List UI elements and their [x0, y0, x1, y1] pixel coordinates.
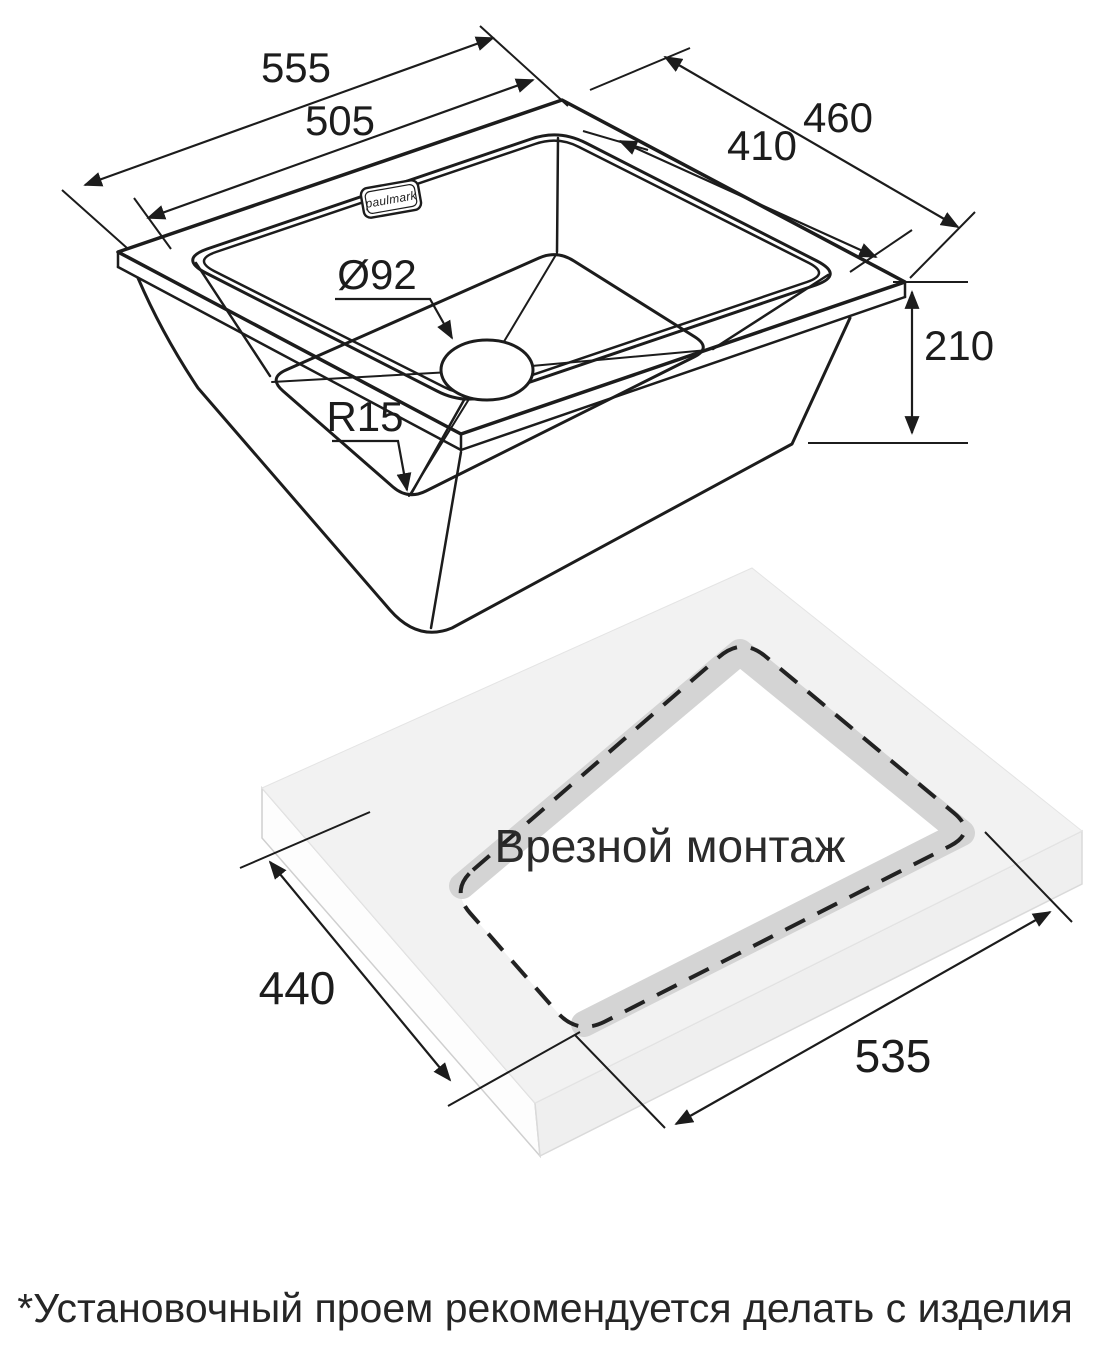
dimension-label-440: 440 [259, 962, 336, 1014]
installation-cutout-view: Врезной монтаж 440 535 [240, 568, 1082, 1156]
drain-leader [335, 299, 452, 338]
dim-line-460 [665, 57, 958, 227]
dimension-label-505: 505 [305, 97, 375, 144]
dimension-label-535: 535 [855, 1030, 932, 1082]
brand-logo: paulmark [360, 179, 422, 219]
sink-technical-drawing: paulmark 555 505 460 410 210 Ø92 [0, 0, 1114, 1371]
underbody-corner-seam [431, 452, 461, 628]
dimension-label-drain: Ø92 [337, 251, 416, 298]
installation-caption: Врезной монтаж [495, 820, 846, 872]
sink-dimensions: 555 505 460 410 210 Ø92 R15 [62, 26, 994, 490]
dimension-label-radius: R15 [326, 393, 403, 440]
dimension-label-210: 210 [924, 322, 994, 369]
footnote: *Установочный проем рекомендуется делать… [17, 1285, 1073, 1331]
dimension-label-410: 410 [727, 122, 797, 169]
sink-isometric-view: paulmark 555 505 460 410 210 Ø92 [62, 26, 994, 632]
drain-hole [441, 340, 533, 400]
dimension-label-460: 460 [803, 94, 873, 141]
dimension-label-555: 555 [261, 44, 331, 91]
technical-drawing-page: paulmark 555 505 460 410 210 Ø92 [0, 0, 1114, 1371]
